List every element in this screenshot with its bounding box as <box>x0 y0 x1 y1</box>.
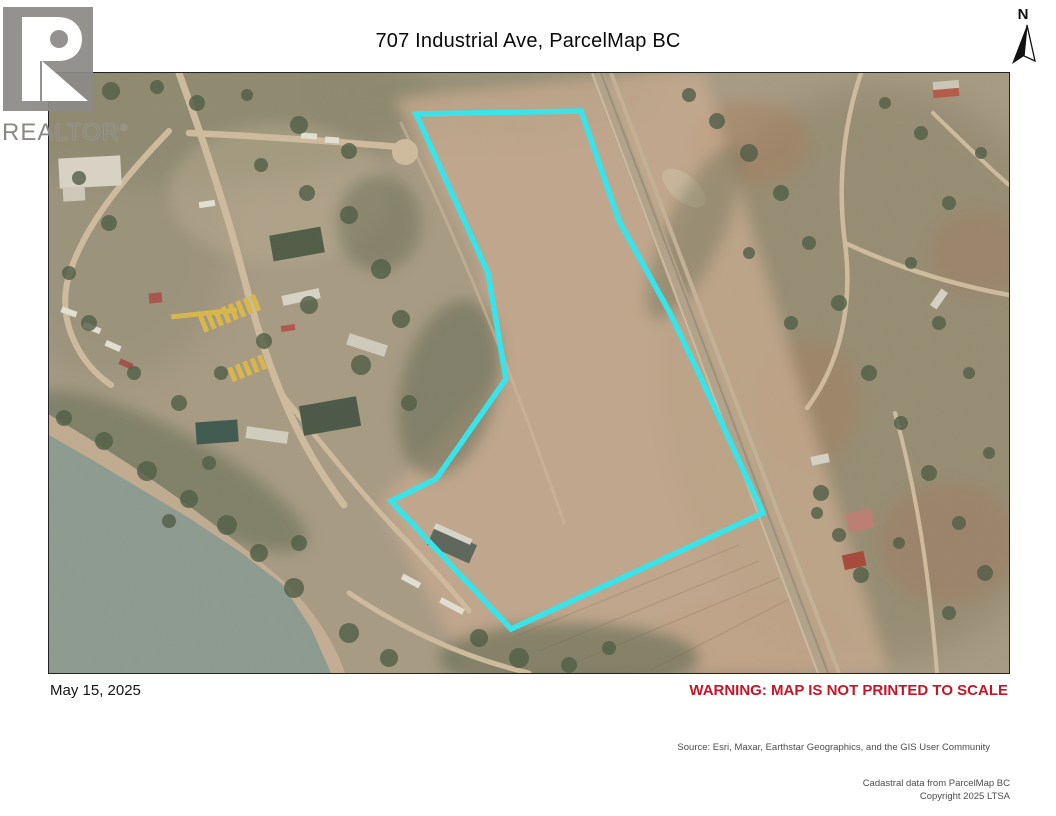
north-label: N <box>1000 6 1046 23</box>
cadastral-line-2: Copyright 2025 LTSA <box>863 790 1010 803</box>
north-arrow: N <box>998 6 1046 70</box>
realtor-logo-icon <box>2 6 94 112</box>
scale-warning-label: WARNING: MAP IS NOT PRINTED TO SCALE <box>689 682 1008 699</box>
map-date-label: May 15, 2025 <box>50 682 141 699</box>
cadastral-line-1: Cadastral data from ParcelMap BC <box>863 777 1010 790</box>
map-frame <box>48 72 1010 674</box>
aerial-imagery <box>49 73 1009 673</box>
realtor-logo: REALTOR® <box>2 6 152 147</box>
registered-trademark-symbol: ® <box>120 123 128 134</box>
cadastral-attribution: Cadastral data from ParcelMap BC Copyrig… <box>863 777 1010 803</box>
parcelmap-report-page: 707 Industrial Ave, ParcelMap BC <box>0 0 1056 816</box>
north-arrow-icon <box>1002 23 1042 67</box>
imagery-source-attribution: Source: Esri, Maxar, Earthstar Geographi… <box>677 742 990 753</box>
realtor-logo-text: REALTOR® <box>2 119 152 147</box>
page-title: 707 Industrial Ave, ParcelMap BC <box>0 30 1056 53</box>
